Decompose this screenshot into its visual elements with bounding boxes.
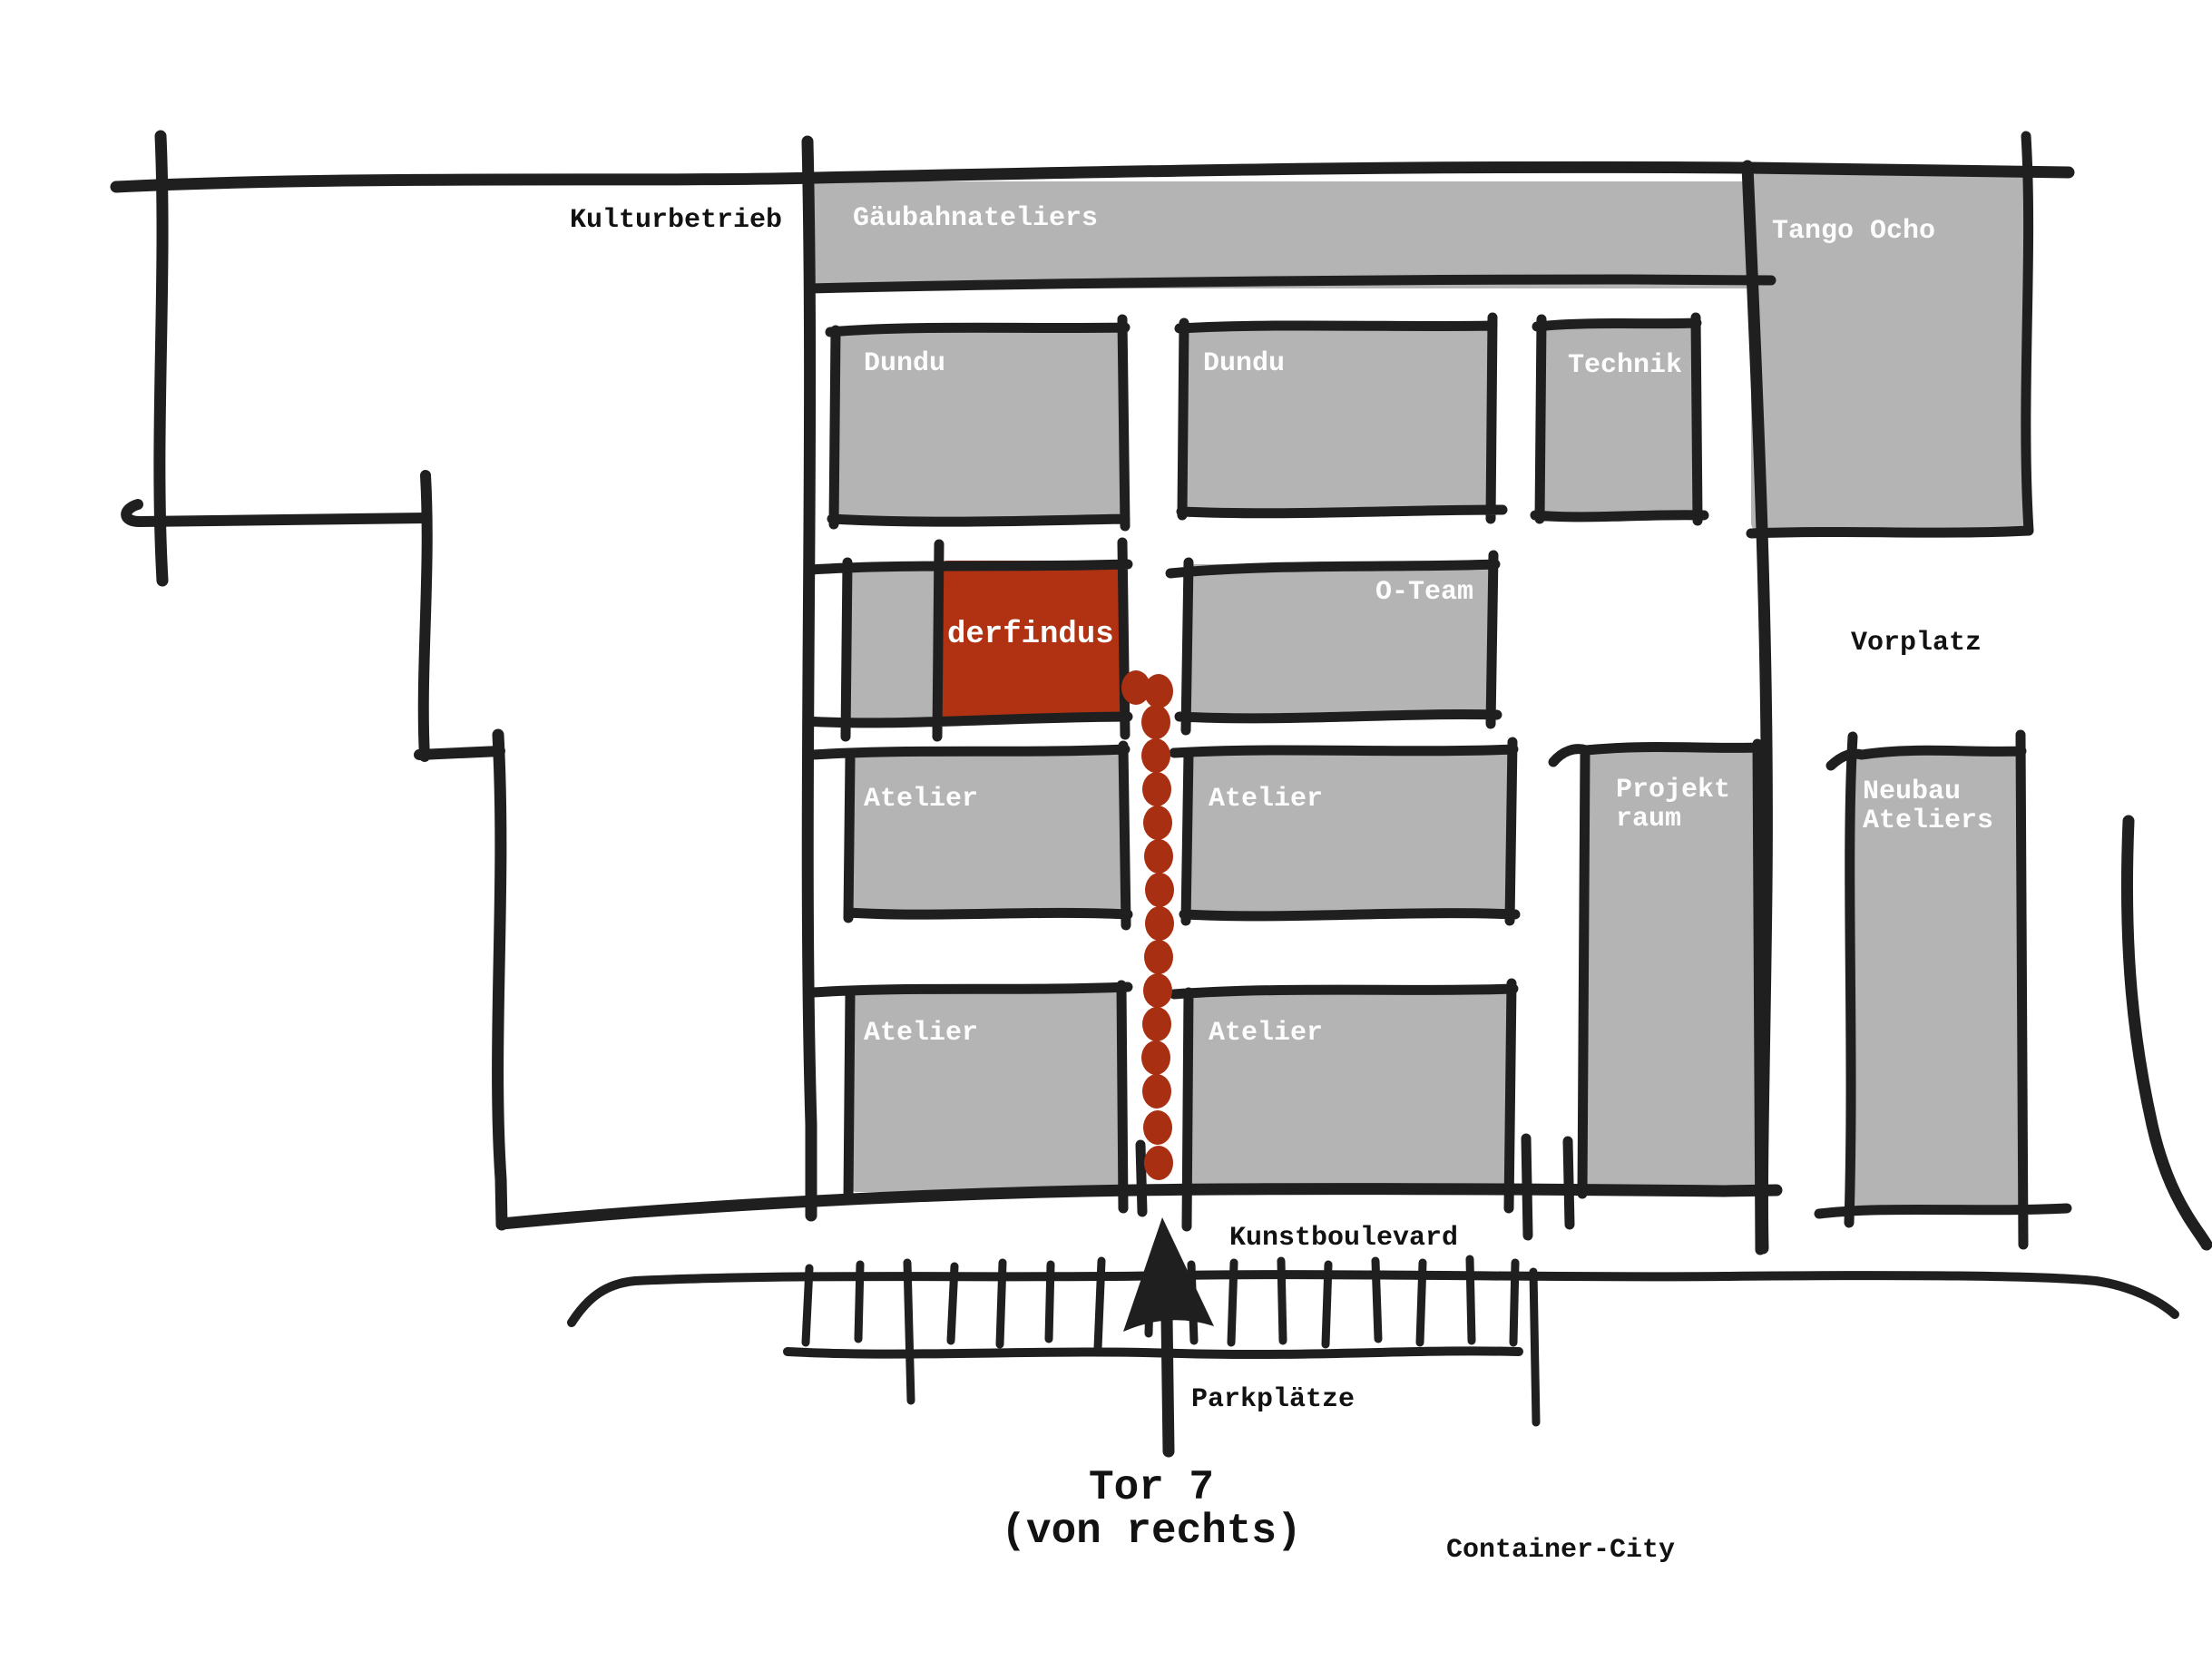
route-dot	[1144, 674, 1173, 708]
label-dundu-west: Dundu	[864, 348, 945, 379]
arrow-shaft	[1167, 1317, 1169, 1451]
route-dot	[1143, 806, 1172, 840]
outline-tango-bottom	[1751, 531, 2029, 533]
wall-step-horizontal	[419, 751, 500, 755]
wall-step-vertical	[424, 475, 427, 757]
label-parkplaetze: Parkplätze	[1191, 1384, 1355, 1415]
route-dot	[1144, 940, 1173, 974]
line-far-right-curve	[2127, 821, 2207, 1245]
building-gaeubahnateliers	[812, 181, 1751, 288]
label-atelier-se: Atelier	[1209, 1018, 1323, 1049]
label-tor7-line1: Tor 7	[1089, 1464, 1214, 1511]
route-dot	[1141, 1040, 1170, 1075]
route-dot	[1142, 1007, 1171, 1041]
label-tor7-line2: (von rechts)	[1001, 1508, 1301, 1555]
route-dot	[1145, 906, 1174, 941]
label-neubau-line1: Neubau	[1863, 777, 1961, 807]
building-small-west	[849, 564, 938, 720]
label-atelier-nw: Atelier	[864, 784, 978, 815]
outline-tango-right	[2026, 136, 2029, 531]
label-technik: Technik	[1568, 350, 1682, 381]
label-neubau-line2: Ateliers	[1863, 806, 1993, 836]
route-dot	[1144, 839, 1173, 874]
label-projektraum-line1: Projekt	[1616, 775, 1730, 806]
label-derfindus: derfindus	[947, 618, 1114, 652]
entrance-arrow	[1123, 1217, 1214, 1451]
label-vorplatz: Vorplatz	[1851, 628, 1982, 659]
building-atelier-nw	[849, 751, 1121, 913]
label-kulturbetrieb: Kulturbetrieb	[570, 205, 782, 236]
wall-main-left-vertical	[807, 142, 811, 1216]
route-dot	[1141, 738, 1170, 773]
label-tango-ocho: Tango Ocho	[1772, 216, 1935, 247]
label-dundu-east: Dundu	[1203, 348, 1285, 379]
label-projektraum-line2: raum	[1616, 804, 1681, 835]
building-atelier-ne	[1187, 751, 1512, 913]
route-dot	[1141, 705, 1170, 739]
label-o-team: O-Team	[1375, 577, 1473, 608]
route-dot	[1142, 1074, 1171, 1109]
wall-mid-left-horizontal	[126, 504, 426, 522]
route-dot	[1144, 1146, 1173, 1180]
wall-left-vertical	[160, 136, 162, 581]
label-gaeubahnateliers: Gäubahnateliers	[853, 203, 1098, 234]
route-dot	[1145, 873, 1174, 907]
label-atelier-ne: Atelier	[1209, 784, 1323, 815]
label-container-city: Container-City	[1446, 1535, 1675, 1566]
route-dot	[1142, 772, 1171, 806]
route-dot	[1143, 1110, 1172, 1145]
label-atelier-sw: Atelier	[864, 1018, 978, 1049]
wall-lower-left-vertical	[498, 735, 502, 1225]
site-map: Gäubahnateliers Tango Ocho Dundu Dundu T…	[0, 0, 2212, 1680]
route-dot	[1143, 973, 1172, 1008]
railway-rail-bottom	[788, 1351, 1519, 1354]
map-canvas: Gäubahnateliers Tango Ocho Dundu Dundu T…	[0, 0, 2212, 1680]
label-kunstboulevard: Kunstboulevard	[1229, 1223, 1458, 1254]
